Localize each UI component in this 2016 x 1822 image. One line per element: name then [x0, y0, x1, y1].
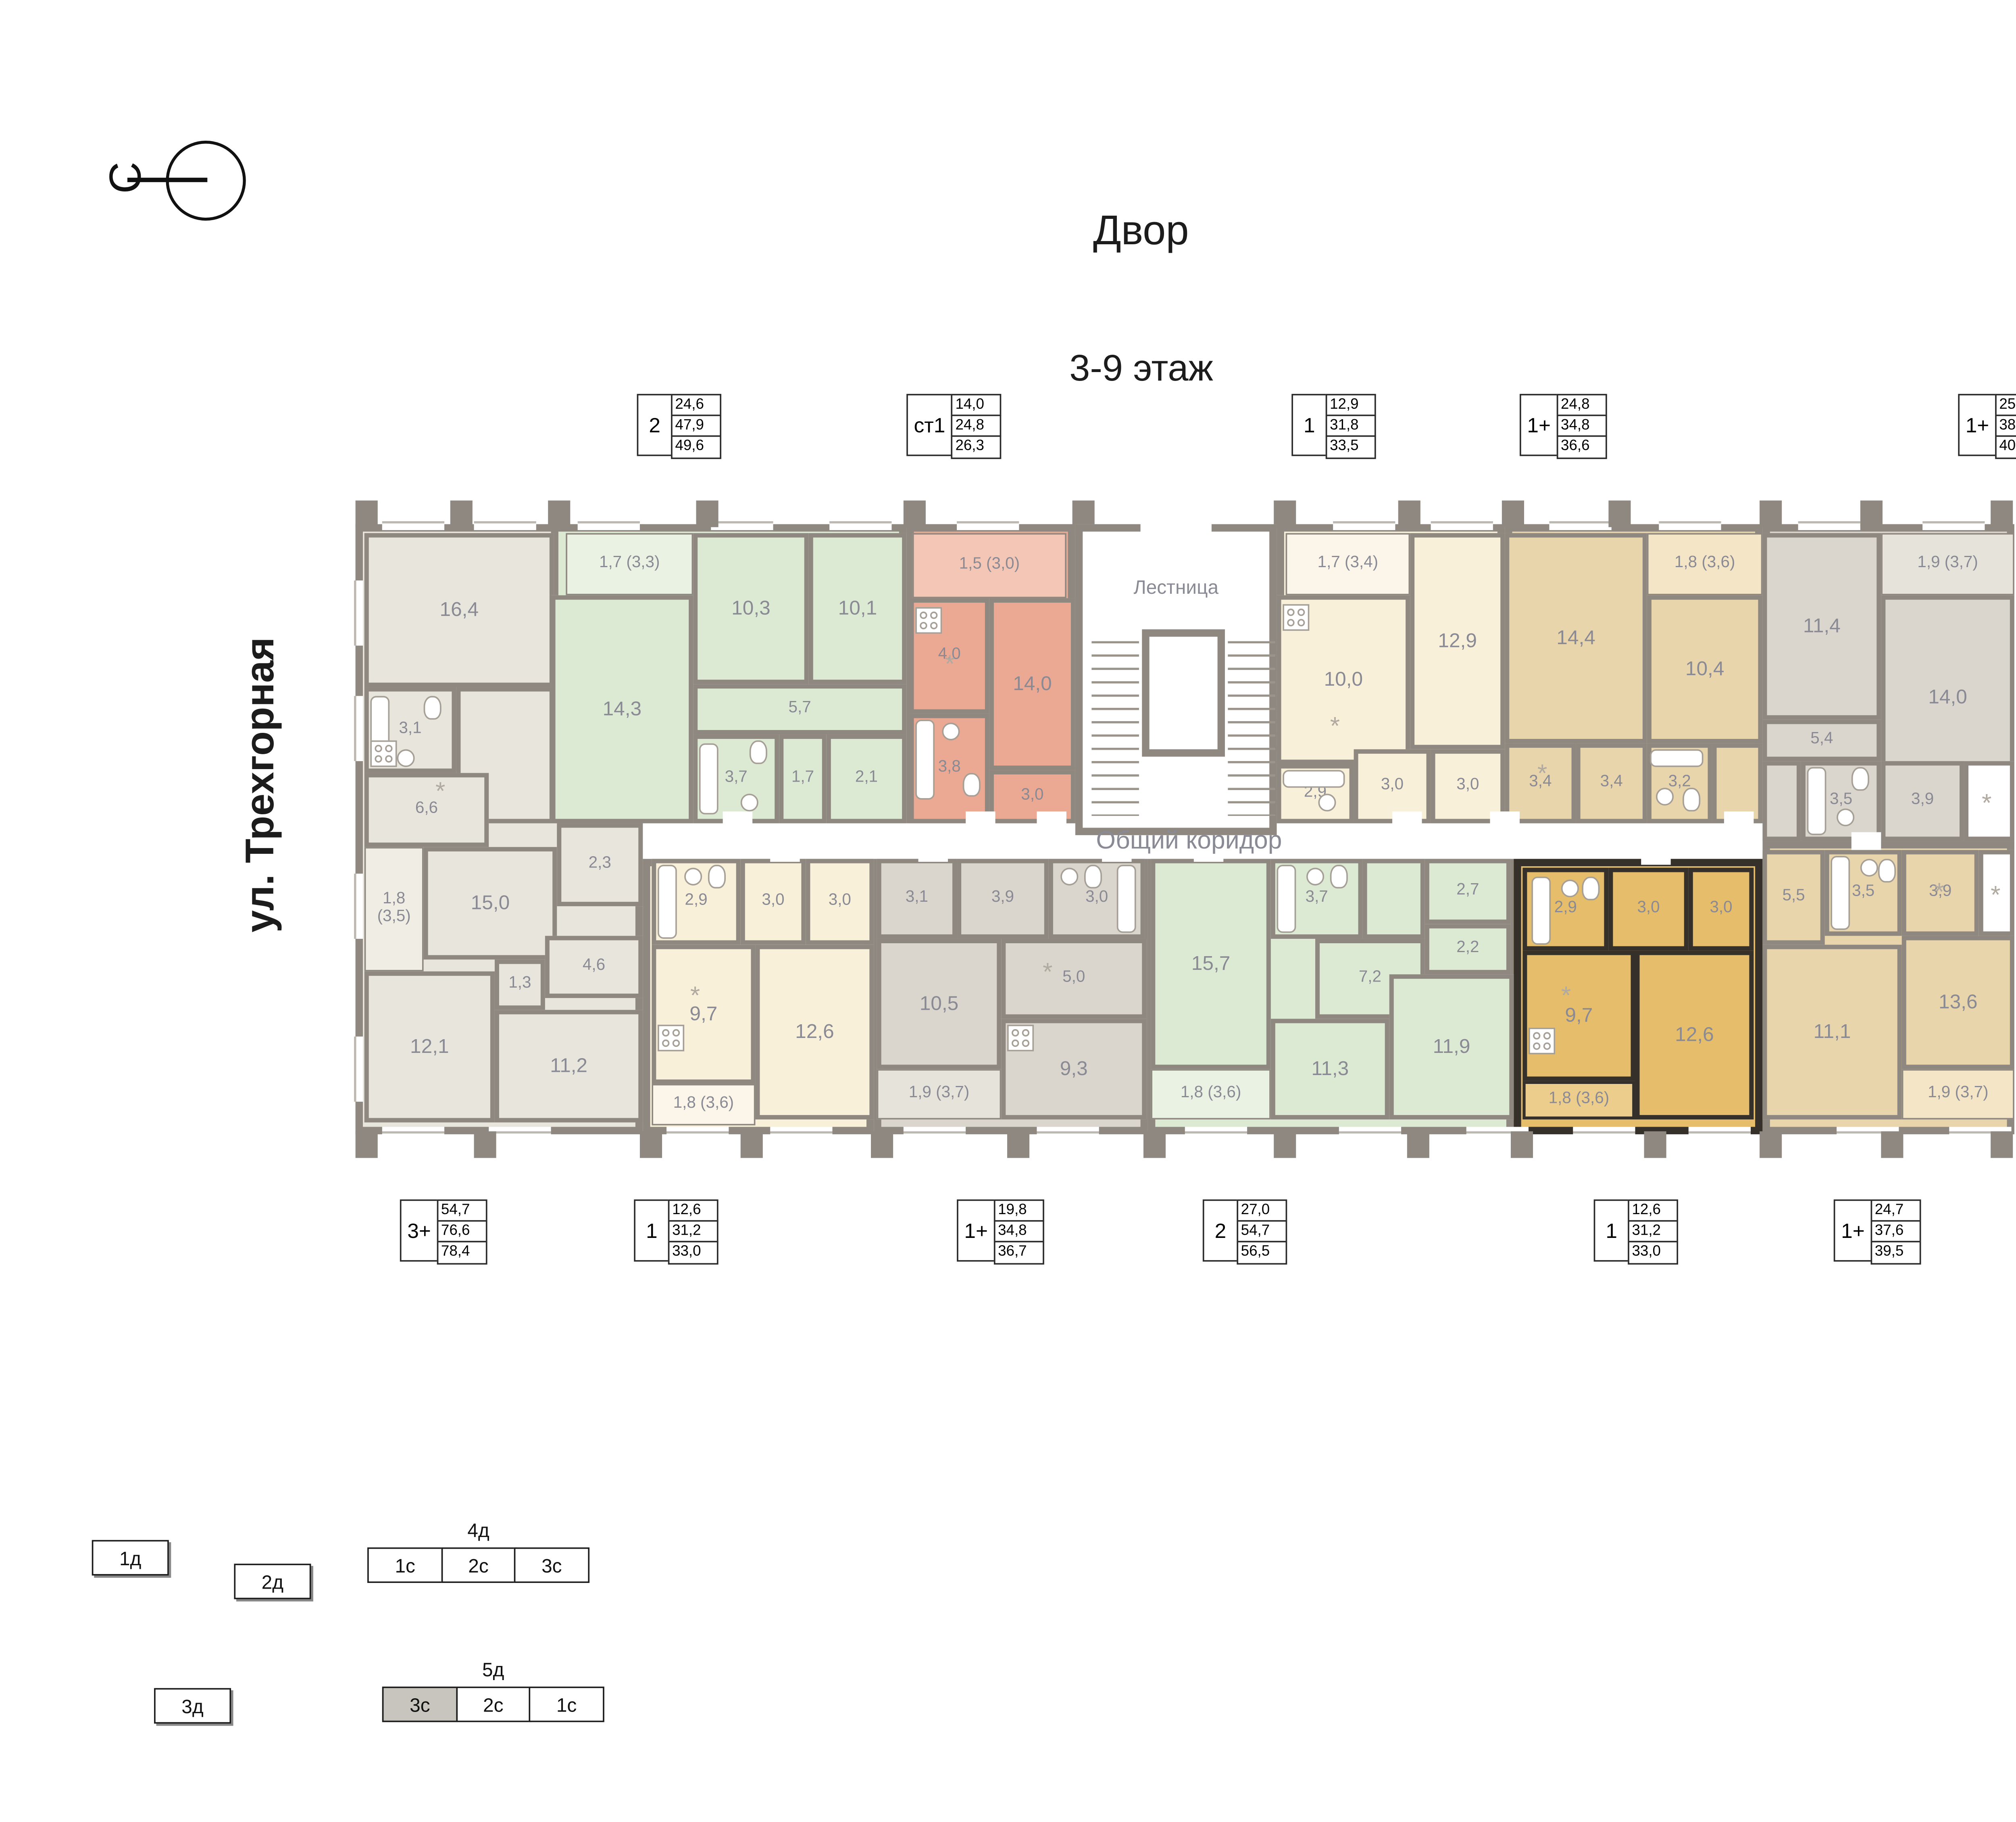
unit-spec: 3+54,776,678,4 [400, 1200, 487, 1264]
unit-type-label: 1 [1594, 1200, 1629, 1262]
unit-area-value: 31,8 [1325, 415, 1376, 437]
unit-spec: ст114,024,826,3 [906, 394, 1001, 458]
legend-group-title: 5д [382, 1658, 604, 1681]
unit-area-value: 78,4 [437, 1241, 487, 1264]
unit-area-value: 31,2 [668, 1220, 718, 1243]
unit-type-label: 1 [1291, 394, 1327, 456]
unit-area-value: 56,5 [1237, 1241, 1287, 1264]
unit-type-label: 1+ [1958, 394, 1996, 456]
unit-type-label: 1+ [1834, 1200, 1872, 1262]
legend-section-1с[interactable]: 1с [367, 1547, 443, 1583]
legend-section-2с[interactable]: 2с [456, 1687, 531, 1722]
unit-type-label: ст1 [906, 394, 953, 456]
unit-area-value: 12,9 [1325, 394, 1376, 416]
unit-type-label: 1+ [957, 1200, 995, 1262]
unit-type-label: 2 [1203, 1200, 1238, 1262]
unit-area-value: 34,8 [993, 1220, 1044, 1243]
unit-area-value: 27,0 [1237, 1200, 1287, 1222]
unit-spec: 224,647,949,6 [637, 394, 721, 458]
unit-area-value: 38,2 [1995, 415, 2016, 437]
unit-area-value: 47,9 [671, 415, 721, 437]
floor-plan-page: С Двор 3-9 этаж ул. Трехгорная 16,43,16,… [0, 0, 2016, 1822]
legend-block-2д[interactable]: 2д [234, 1564, 311, 1599]
unit-type-label: 1 [634, 1200, 669, 1262]
legend-group-4д: 4д1с2с3с [367, 1519, 589, 1583]
legend-section-3с[interactable]: 3с [382, 1687, 458, 1722]
unit-spec: 112,631,233,0 [1594, 1200, 1678, 1264]
unit-area-value: 39,5 [1870, 1241, 1921, 1264]
unit-spec: 1+25,438,240,1 [1958, 394, 2016, 458]
unit-area-value: 37,6 [1870, 1220, 1921, 1243]
unit-area-value: 33,5 [1325, 436, 1376, 458]
unit-spec: 227,054,756,5 [1203, 1200, 1287, 1264]
unit-area-value: 24,7 [1870, 1200, 1921, 1222]
ui-layer: 224,647,949,6ст114,024,826,3112,931,833,… [0, 0, 2016, 1821]
unit-type-label: 1+ [1520, 394, 1558, 456]
unit-area-value: 31,2 [1627, 1220, 1678, 1243]
unit-type-label: 2 [637, 394, 673, 456]
unit-spec: 1+19,834,836,7 [957, 1200, 1044, 1264]
unit-type-label: 3+ [400, 1200, 438, 1262]
unit-area-value: 40,1 [1995, 436, 2016, 458]
unit-area-value: 24,8 [951, 415, 1001, 437]
legend-block-3д[interactable]: 3д [154, 1688, 231, 1724]
unit-area-value: 36,6 [1556, 436, 1607, 458]
legend-section-3с[interactable]: 3с [514, 1547, 589, 1583]
unit-area-value: 54,7 [1237, 1220, 1287, 1243]
unit-area-value: 24,8 [1556, 394, 1607, 416]
legend-group-title: 4д [367, 1519, 589, 1541]
unit-spec: 1+24,737,639,5 [1834, 1200, 1921, 1264]
unit-area-value: 12,6 [668, 1200, 718, 1222]
unit-spec: 112,931,833,5 [1291, 394, 1376, 458]
unit-spec: 1+24,834,836,6 [1520, 394, 1607, 458]
unit-area-value: 33,0 [668, 1241, 718, 1264]
unit-area-value: 33,0 [1627, 1241, 1678, 1264]
legend-section-2с[interactable]: 2с [441, 1547, 516, 1583]
unit-area-value: 12,6 [1627, 1200, 1678, 1222]
unit-area-value: 26,3 [951, 436, 1001, 458]
unit-area-value: 14,0 [951, 394, 1001, 416]
legend-group-5д: 5д3с2с1с [382, 1658, 604, 1722]
legend-section-1с[interactable]: 1с [529, 1687, 604, 1722]
unit-area-value: 24,6 [671, 394, 721, 416]
unit-area-value: 36,7 [993, 1241, 1044, 1264]
unit-area-value: 19,8 [993, 1200, 1044, 1222]
unit-area-value: 25,4 [1995, 394, 2016, 416]
unit-area-value: 49,6 [671, 436, 721, 458]
unit-area-value: 34,8 [1556, 415, 1607, 437]
unit-area-value: 54,7 [437, 1200, 487, 1222]
unit-area-value: 76,6 [437, 1220, 487, 1243]
legend-block-1д[interactable]: 1д [92, 1540, 169, 1575]
unit-spec: 112,631,233,0 [634, 1200, 718, 1264]
